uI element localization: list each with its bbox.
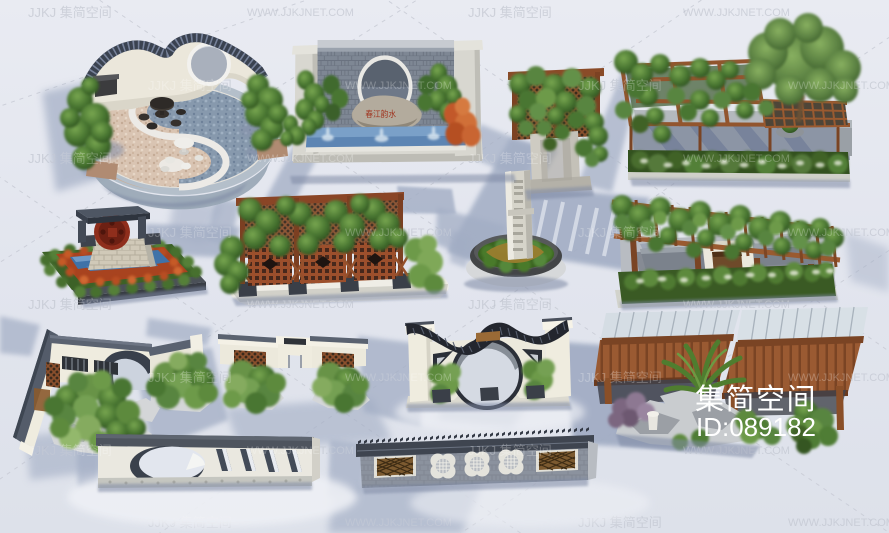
svg-text:JJKJ 集简空间: JJKJ 集简空间 [148, 515, 232, 530]
svg-text:WWW.JJKJNET.COM: WWW.JJKJNET.COM [788, 80, 889, 92]
svg-text:WWW.JJKJNET.COM: WWW.JJKJNET.COM [345, 227, 452, 239]
svg-text:WWW.JJKJNET.COM: WWW.JJKJNET.COM [247, 299, 354, 311]
svg-text:WWW.JJKJNET.COM: WWW.JJKJNET.COM [247, 153, 354, 165]
svg-text:JJKJ 集简空间: JJKJ 集简空间 [28, 443, 112, 458]
svg-text:WWW.JJKJNET.COM: WWW.JJKJNET.COM [788, 372, 889, 384]
svg-text:JJKJ 集简空间: JJKJ 集简空间 [578, 225, 662, 240]
svg-text:WWW.JJKJNET.COM: WWW.JJKJNET.COM [683, 153, 790, 165]
svg-text:JJKJ 集简空间: JJKJ 集简空间 [468, 151, 552, 166]
svg-text:JJKJ 集简空间: JJKJ 集简空间 [578, 370, 662, 385]
svg-text:ID:089182: ID:089182 [696, 412, 816, 442]
svg-text:WWW.JJKJNET.COM: WWW.JJKJNET.COM [247, 445, 354, 457]
svg-text:WWW.JJKJNET.COM: WWW.JJKJNET.COM [683, 299, 790, 311]
svg-text:JJKJ 集简空间: JJKJ 集简空间 [468, 443, 552, 458]
svg-text:JJKJ 集简空间: JJKJ 集简空间 [28, 151, 112, 166]
svg-text:WWW.JJKJNET.COM: WWW.JJKJNET.COM [247, 7, 354, 19]
svg-text:JJKJ 集简空间: JJKJ 集简空间 [148, 370, 232, 385]
svg-text:WWW.JJKJNET.COM: WWW.JJKJNET.COM [788, 227, 889, 239]
svg-text:JJKJ 集简空间: JJKJ 集简空间 [148, 225, 232, 240]
svg-text:JJKJ 集简空间: JJKJ 集简空间 [148, 78, 232, 93]
svg-text:WWW.JJKJNET.COM: WWW.JJKJNET.COM [345, 80, 452, 92]
svg-text:JJKJ 集简空间: JJKJ 集简空间 [28, 297, 112, 312]
svg-text:WWW.JJKJNET.COM: WWW.JJKJNET.COM [345, 372, 452, 384]
svg-text:WWW.JJKJNET.COM: WWW.JJKJNET.COM [683, 445, 790, 457]
svg-text:JJKJ 集简空间: JJKJ 集简空间 [578, 515, 662, 530]
svg-text:JJKJ 集简空间: JJKJ 集简空间 [468, 297, 552, 312]
svg-text:JJKJ 集简空间: JJKJ 集简空间 [28, 5, 112, 20]
svg-text:WWW.JJKJNET.COM: WWW.JJKJNET.COM [345, 517, 452, 529]
svg-text:JJKJ 集简空间: JJKJ 集简空间 [578, 78, 662, 93]
svg-text:WWW.JJKJNET.COM: WWW.JJKJNET.COM [683, 7, 790, 19]
svg-text:WWW.JJKJNET.COM: WWW.JJKJNET.COM [788, 517, 889, 529]
svg-text:春江韵水: 春江韵水 [365, 109, 396, 120]
svg-text:JJKJ 集简空间: JJKJ 集简空间 [468, 5, 552, 20]
